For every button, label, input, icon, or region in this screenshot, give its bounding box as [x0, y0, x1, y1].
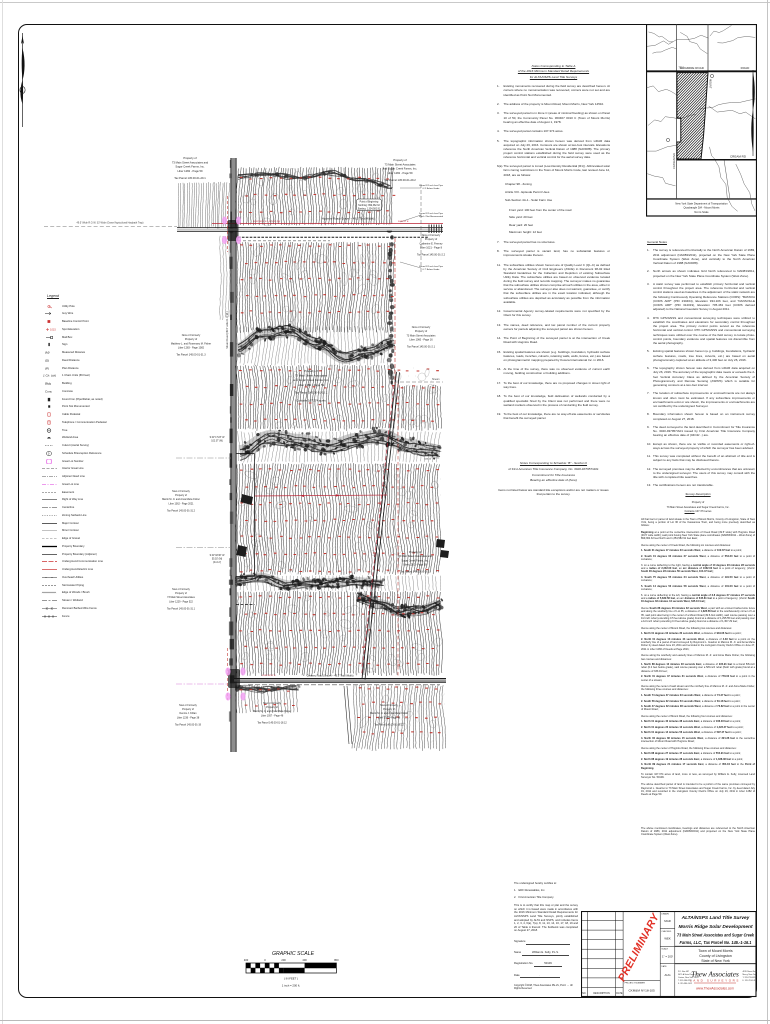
svg-text:400: 400 [244, 958, 249, 962]
svg-text:GRAPHIC SCALE: GRAPHIC SCALE [272, 951, 315, 957]
svg-text:F: 315-386-1412: F: 315-386-1412 [678, 983, 692, 985]
svg-text:LAND SURVEYORS: LAND SURVEYORS [690, 979, 740, 983]
svg-text:MGR: MGR [664, 919, 671, 923]
svg-text:1 inch = 200 ft.: 1 inch = 200 ft. [282, 984, 301, 988]
svg-text:Found 1/2 inch Iron Pipe0.7' B: Found 1/2 inch Iron Pipe0.7' Below Grade [419, 265, 444, 271]
svg-text:Town of Mount Morris: Town of Mount Morris [698, 949, 733, 953]
svg-text:73 Main Street Associates and: 73 Main Street Associates and Sugar Cree… [677, 932, 755, 937]
svg-text:PROJECT NUMBER: PROJECT NUMBER [625, 983, 646, 985]
svg-text:Now or FormerlyProperty ofDenn: Now or FormerlyProperty ofDennis J. Kill… [175, 704, 202, 726]
svg-text:S 01°17'23" W102.37' (M): S 01°17'23" W102.37' (M) [210, 437, 226, 443]
svg-text:Now or FormerlyProperty of73 M: Now or FormerlyProperty of73 Main Street… [167, 588, 196, 610]
svg-text:CASSANOVA: CASSANOVA [672, 153, 676, 169]
svg-text:4876 Rome Road: 4876 Rome Road [743, 971, 758, 973]
svg-text:Creasey Road (Gravel – 49.5' T: Creasey Road (Gravel – 49.5' Total Width… [307, 675, 354, 678]
svg-text:Property of73 Main Street Asso: Property of73 Main Street Associates and… [172, 156, 209, 180]
svg-text:3671-A State Route 11: 3671-A State Route 11 [678, 973, 697, 976]
svg-text:AUG: AUG [664, 973, 670, 977]
svg-text:N 89°57' E: N 89°57' E [398, 221, 409, 223]
svg-text:CKM&M NY18-105: CKM&M NY18-105 [628, 989, 655, 993]
svg-text:( IN FEET ): ( IN FEET ) [284, 977, 298, 981]
svg-text:Marcy, New York 13403: Marcy, New York 13403 [743, 973, 758, 976]
svg-text:State of New York: State of New York [701, 959, 730, 963]
svg-text:Property of73 Main Street Asso: Property of73 Main Street Associates and… [398, 551, 432, 574]
svg-text:T: 315-793-0526: T: 315-793-0526 [743, 977, 757, 979]
svg-text:CHECKED: CHECKED [661, 931, 671, 933]
svg-text:MOUNT: MOUNT [709, 79, 713, 89]
svg-text:www.ThewAssociates.com: www.ThewAssociates.com [696, 987, 734, 991]
svg-text:49.5' Wide R.O.W. 33' Wide (Gr: 49.5' Wide R.O.W. 33' Wide (Gravel Agric… [77, 222, 144, 225]
svg-text:N 89°30'54" E: N 89°30'54" E [262, 675, 276, 677]
svg-text:Hogmire Road (Gravel – 49.5' T: Hogmire Road (Gravel – 49.5' Total Width… [322, 216, 375, 220]
svg-text:New York State Department of T: New York State Department of Transportat… [675, 202, 728, 206]
svg-text:7010: 7010 [679, 67, 685, 70]
svg-text:Not to Scale: Not to Scale [694, 210, 709, 214]
svg-text:Mount Road (49.5' wide R.O.W.): Mount Road (49.5' wide R.O.W.) [225, 311, 229, 348]
svg-text:0: 0 [264, 958, 266, 962]
svg-text:N 89°58'09" E 1,321.95' (M): N 89°58'09" E 1,321.95' (M) [253, 221, 280, 223]
svg-text:Property of73 Main Street Asso: Property of73 Main Street Associatesand … [383, 158, 418, 182]
svg-text:1" = 200': 1" = 200' [662, 954, 673, 958]
svg-text:SCALE: SCALE [661, 948, 668, 951]
svg-text:DESCRIPTION: DESCRIPTION [593, 992, 610, 995]
svg-text:Found 1/2 inch Iron PipeFlush: Found 1/2 inch Iron PipeFlush / Not Monu… [419, 212, 444, 218]
svg-text:ALTA/NSPS Land Title Survey: ALTA/NSPS Land Title Survey [681, 915, 750, 921]
svg-text:F: 315-793-1417: F: 315-793-1417 [743, 980, 757, 982]
svg-text:Morris Ridge Solar Development: Morris Ridge Solar Development [678, 924, 753, 930]
svg-text:Canton, New York 13617: Canton, New York 13617 [678, 976, 699, 979]
svg-text:T: 315-386-2255: T: 315-386-2255 [678, 980, 692, 982]
svg-text:200: 200 [281, 958, 286, 962]
svg-text:Point of BeginningNorthing: 89: Point of BeginningNorthing: 899,362.32Ea… [358, 200, 381, 210]
svg-text:S 01°02'30" W55.02' (M)(D–0.2': S 01°02'30" W55.02' (M)(D–0.2') [210, 555, 226, 564]
svg-text:CREAM RD: CREAM RD [730, 155, 747, 159]
svg-text:Now or FormerlyProperty ofMatt: Now or FormerlyProperty ofMatthew L. and… [171, 334, 211, 357]
svg-text:Now or FormerlyProperty of73 M: Now or FormerlyProperty of73 Main Street… [407, 326, 437, 349]
svg-text:WEK: WEK [664, 937, 671, 941]
svg-text:DATE: DATE [661, 965, 667, 968]
svg-text:DRAWN: DRAWN [661, 912, 669, 915]
svg-text:800: 800 [334, 958, 339, 962]
svg-text:400: 400 [302, 958, 307, 962]
svg-text:Farms, LLC, Tax Parcel No. 145: Farms, LLC, Tax Parcel No. 145.-1-16.1 [680, 940, 753, 945]
svg-text:DATE: DATE [616, 992, 623, 995]
svg-text:Now or FormerlyProperty ofMart: Now or FormerlyProperty ofMartin M. Jr. … [162, 490, 200, 512]
svg-text:Quadrangle D/A - Mount Morris: Quadrangle D/A - Mount Morris [684, 206, 721, 210]
svg-text:County of Livingston: County of Livingston [699, 954, 732, 958]
svg-text:Stream: Stream [432, 378, 439, 381]
svg-text:Found 1/2 inch Iron Pipe0.3' B: Found 1/2 inch Iron Pipe0.3' Below Grade [419, 184, 444, 190]
svg-text:NO.: NO. [582, 992, 587, 995]
svg-text:P.O. Box 487: P.O. Box 487 [678, 971, 689, 973]
svg-text:Property of73 Main Street Asso: Property of73 Main Street Associatesand … [293, 369, 329, 402]
svg-text:Now or FormerlyProperty ofMart: Now or FormerlyProperty ofMartin M. Jr. … [253, 702, 291, 724]
